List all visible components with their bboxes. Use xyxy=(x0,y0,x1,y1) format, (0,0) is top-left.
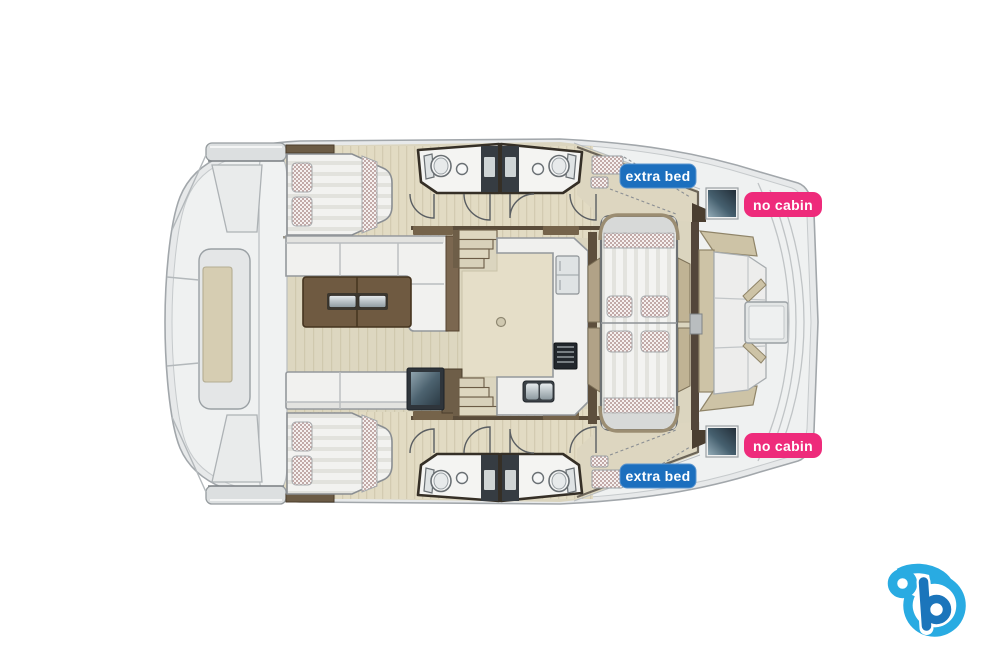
svg-text:no cabin: no cabin xyxy=(753,197,813,213)
svg-text:extra bed: extra bed xyxy=(626,168,691,184)
svg-text:extra bed: extra bed xyxy=(626,468,691,484)
svg-text:no cabin: no cabin xyxy=(753,438,813,454)
